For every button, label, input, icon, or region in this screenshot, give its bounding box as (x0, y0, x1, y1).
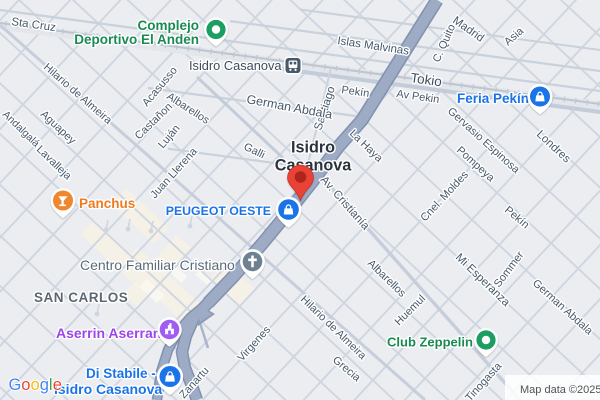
svg-text:Centro Familiar Cristiano: Centro Familiar Cristiano (80, 257, 235, 273)
svg-text:Feria Pekín: Feria Pekín (457, 91, 529, 106)
svg-text:Map data ©2025: Map data ©2025 (520, 384, 600, 396)
svg-text:Aserrin Aserran: Aserrin Aserran (56, 325, 161, 341)
svg-text:Panchus: Panchus (79, 196, 135, 211)
svg-text:Club Zeppelin: Club Zeppelin (387, 335, 473, 350)
svg-text:e: e (53, 376, 62, 394)
svg-text:Complejo: Complejo (137, 18, 199, 33)
svg-text:Isidro Casanova: Isidro Casanova (54, 381, 162, 397)
svg-text:SAN CARLOS: SAN CARLOS (34, 290, 128, 305)
svg-text:PEUGEOT OESTE: PEUGEOT OESTE (166, 204, 271, 218)
svg-text:Casanova: Casanova (275, 157, 352, 175)
svg-text:g: g (40, 376, 49, 394)
svg-text:G: G (9, 376, 22, 394)
svg-text:Isidro Casanova: Isidro Casanova (189, 58, 282, 73)
svg-text:Isidro: Isidro (291, 139, 335, 157)
svg-text:Deportivo El Anden: Deportivo El Anden (74, 32, 199, 47)
svg-text:Di Stabile -: Di Stabile - (86, 366, 156, 381)
svg-text:o: o (21, 376, 30, 394)
svg-text:o: o (31, 376, 40, 394)
